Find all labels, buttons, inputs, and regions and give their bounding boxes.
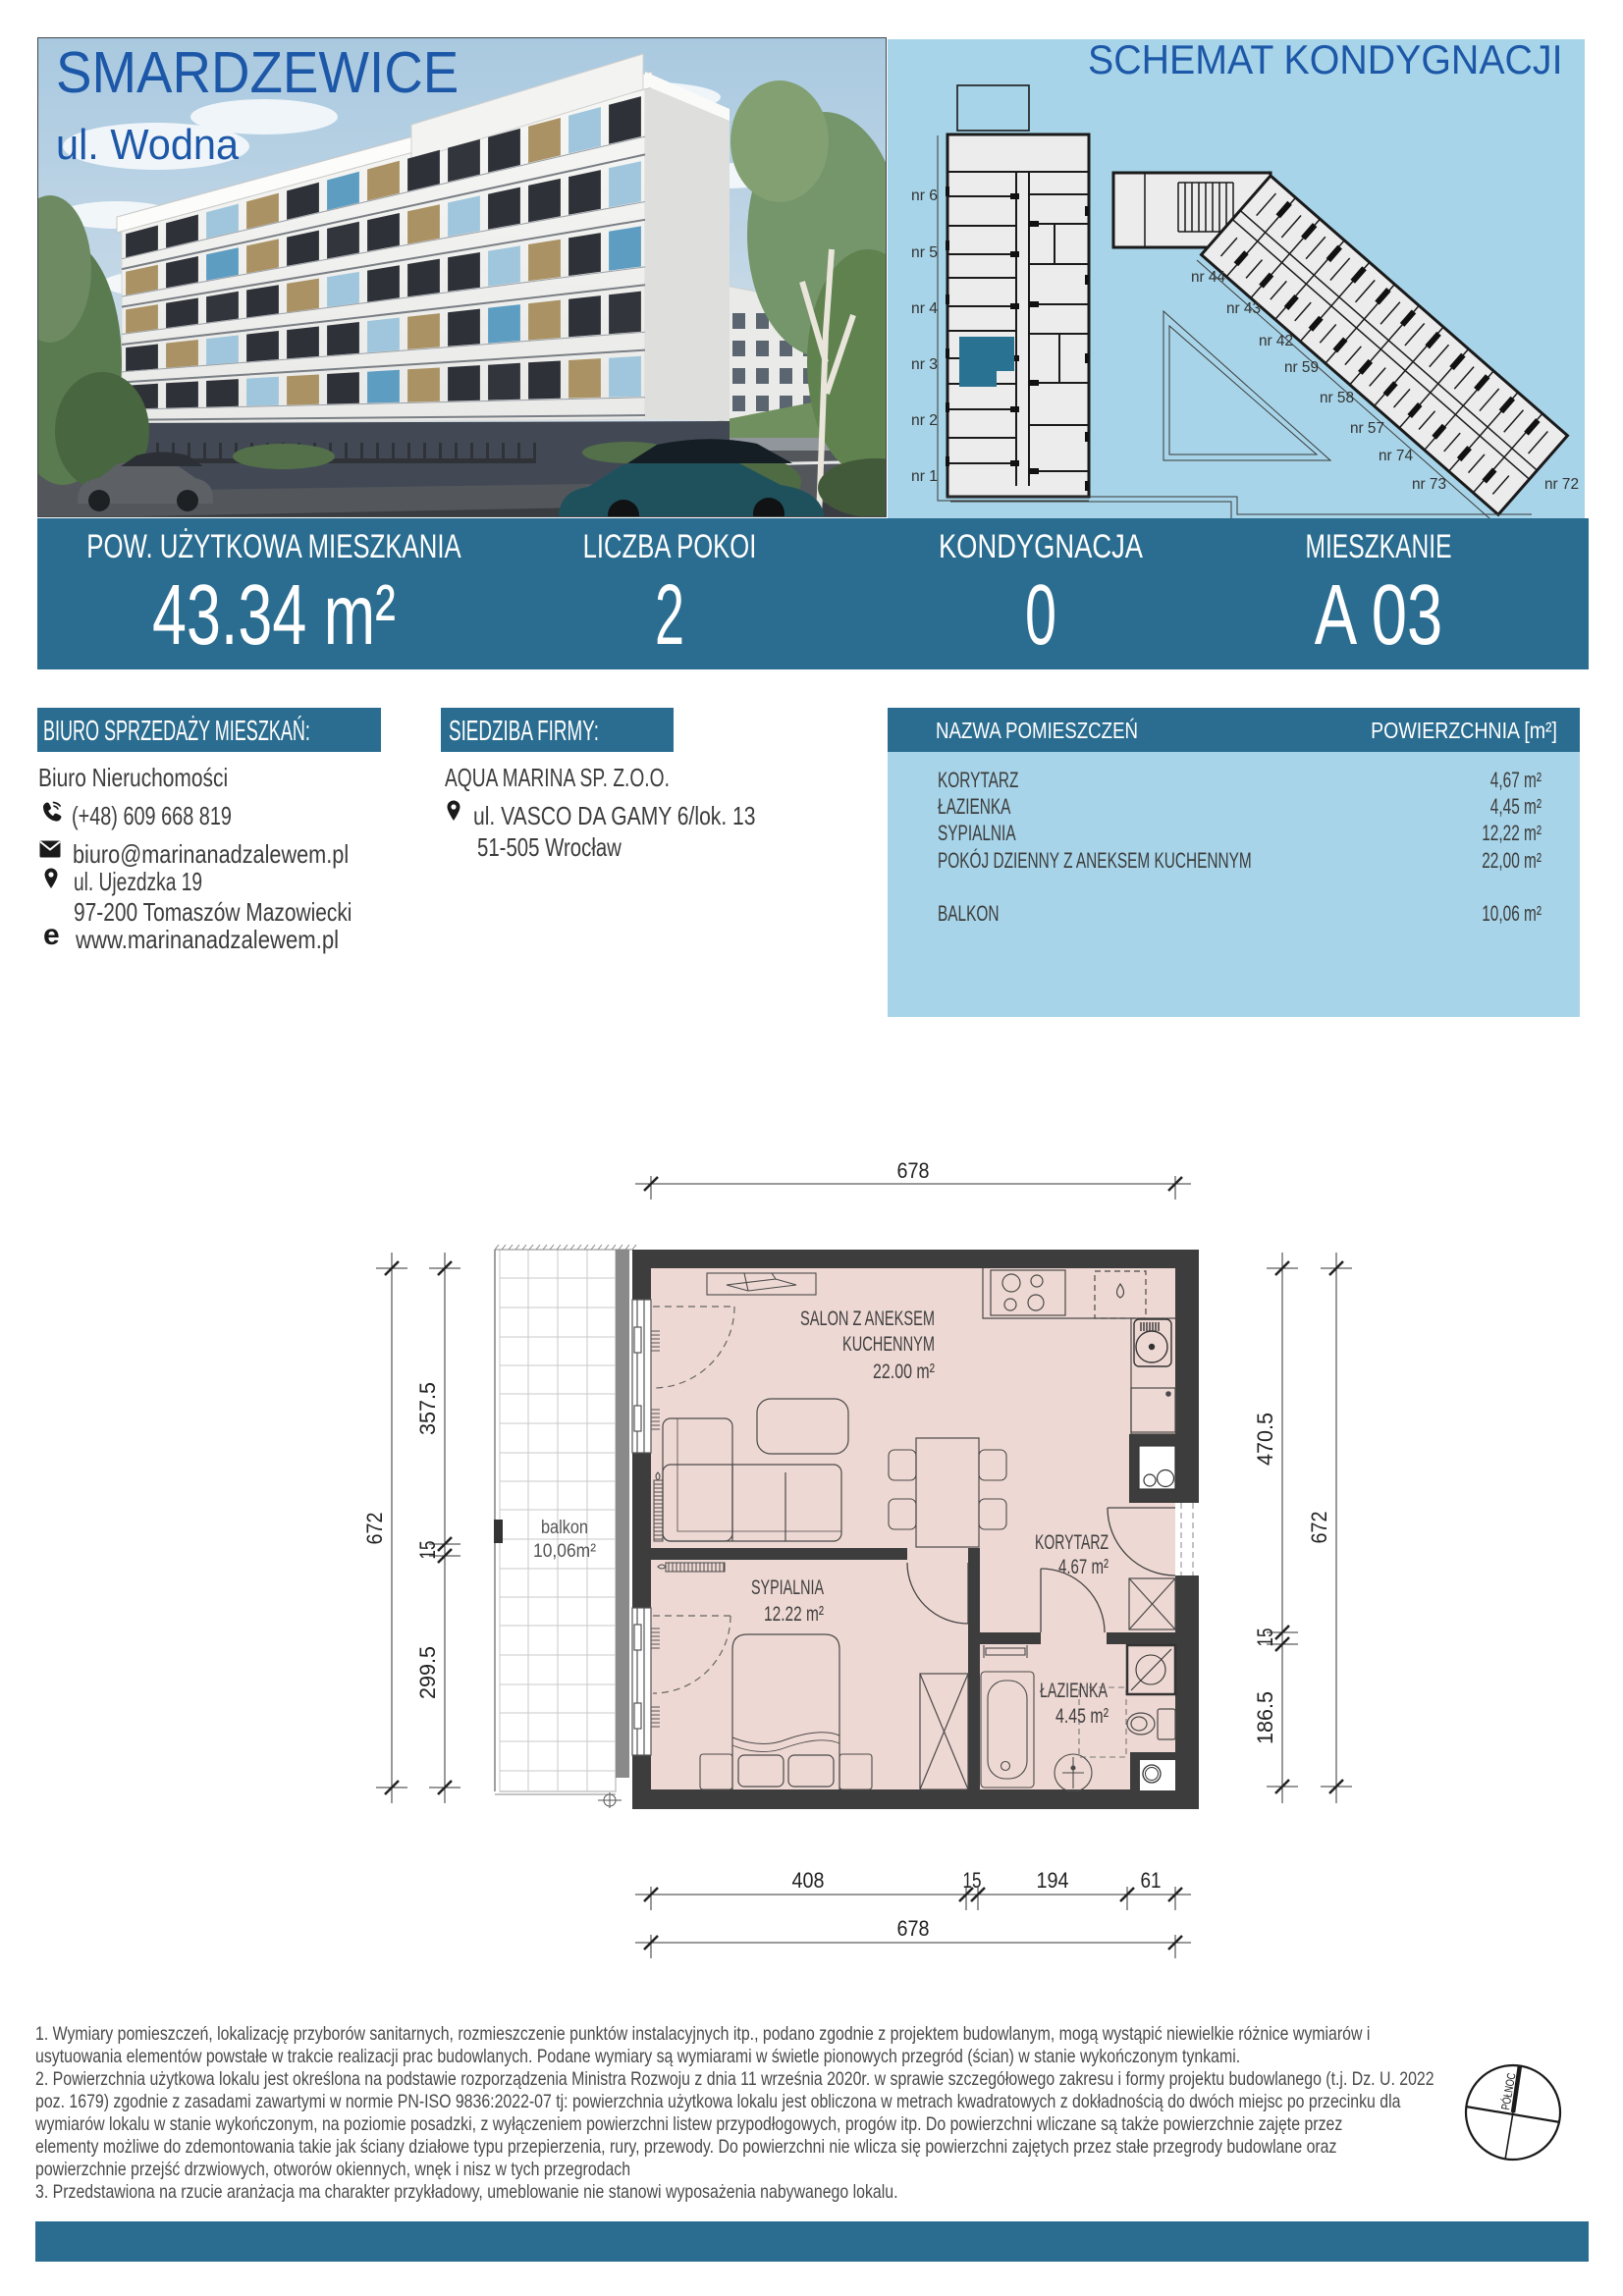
svg-text:672: 672 bbox=[1307, 1512, 1331, 1544]
svg-text:12.22 m²: 12.22 m² bbox=[764, 1603, 824, 1626]
svg-text:SYPIALNIA: SYPIALNIA bbox=[751, 1576, 824, 1599]
svg-text:SALON Z ANEKSEM: SALON Z ANEKSEM bbox=[800, 1308, 935, 1330]
svg-text:KORYTARZ: KORYTARZ bbox=[1035, 1531, 1109, 1554]
svg-text:470.5: 470.5 bbox=[1253, 1413, 1277, 1466]
svg-text:ŁAZIENKA: ŁAZIENKA bbox=[1040, 1680, 1108, 1702]
svg-text:299.5: 299.5 bbox=[415, 1646, 440, 1699]
svg-text:15: 15 bbox=[1253, 1629, 1277, 1647]
svg-text:4.45 m²: 4.45 m² bbox=[1055, 1705, 1109, 1728]
svg-text:678: 678 bbox=[897, 1158, 930, 1183]
svg-text:10,06m²: 10,06m² bbox=[533, 1541, 596, 1562]
svg-text:194: 194 bbox=[1037, 1868, 1069, 1893]
svg-text:15: 15 bbox=[963, 1868, 982, 1893]
svg-text:186.5: 186.5 bbox=[1253, 1691, 1277, 1744]
svg-text:61: 61 bbox=[1141, 1868, 1162, 1893]
svg-text:22.00 m²: 22.00 m² bbox=[873, 1361, 935, 1383]
svg-text:4.67 m²: 4.67 m² bbox=[1058, 1556, 1109, 1578]
svg-text:balkon: balkon bbox=[541, 1518, 588, 1538]
svg-text:357.5: 357.5 bbox=[415, 1382, 440, 1435]
svg-text:408: 408 bbox=[792, 1868, 825, 1893]
svg-text:KUCHENNYM: KUCHENNYM bbox=[842, 1333, 935, 1356]
svg-text:672: 672 bbox=[362, 1513, 387, 1545]
svg-text:678: 678 bbox=[897, 1916, 930, 1941]
svg-text:15: 15 bbox=[415, 1541, 440, 1560]
